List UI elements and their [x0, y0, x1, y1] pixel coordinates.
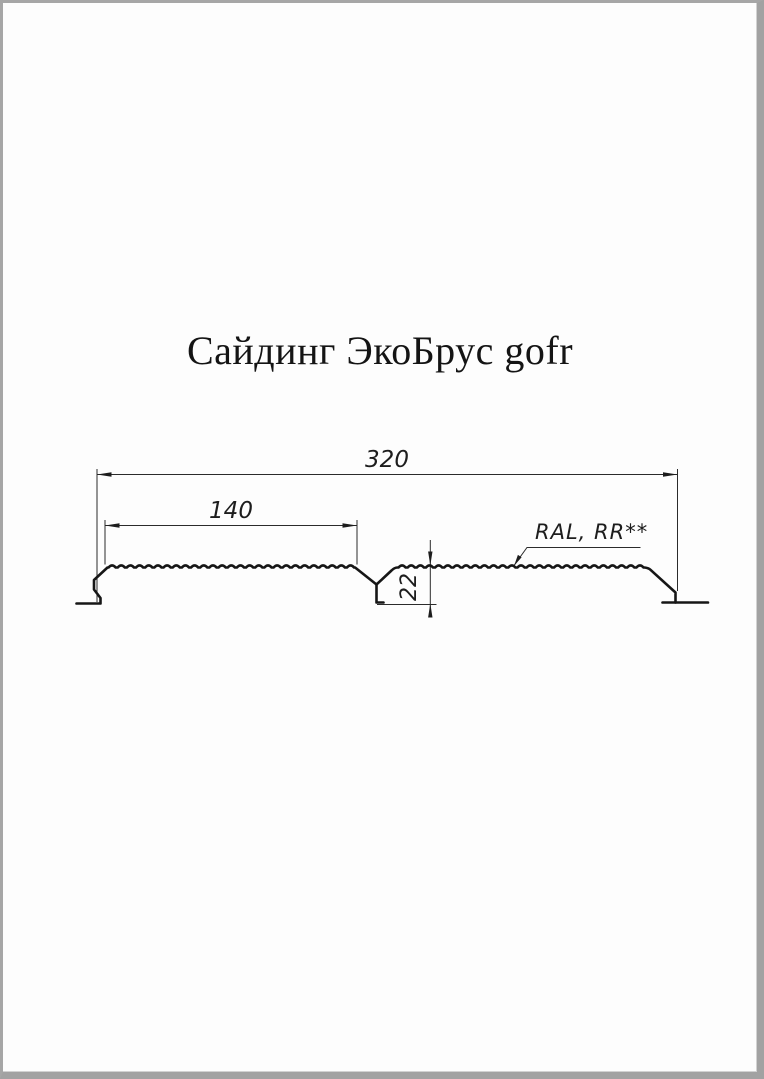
dim-text-overall-width: 320 — [365, 447, 409, 473]
leader-line-coating — [514, 548, 641, 566]
arrow-22-top — [428, 552, 432, 566]
arrow-140-right — [343, 523, 358, 527]
arrow-320-right — [663, 472, 678, 476]
arrow-140-left — [105, 523, 120, 527]
drawing-page: Сайдинг ЭкоБрус gofr — [0, 0, 764, 1079]
profile-outline-group — [77, 565, 709, 603]
dimension-arrows — [97, 472, 678, 617]
dim-text-profile-height: 22 — [397, 573, 422, 601]
arrow-22-bottom — [428, 604, 432, 618]
coating-label: RAL, RR** — [535, 520, 648, 544]
arrow-320-left — [97, 472, 112, 476]
profile-drawing: 320 140 22 RAL, RR** — [3, 3, 764, 1079]
dim-text-face-width: 140 — [209, 498, 253, 524]
profile-middle-groove-drop — [377, 585, 384, 603]
